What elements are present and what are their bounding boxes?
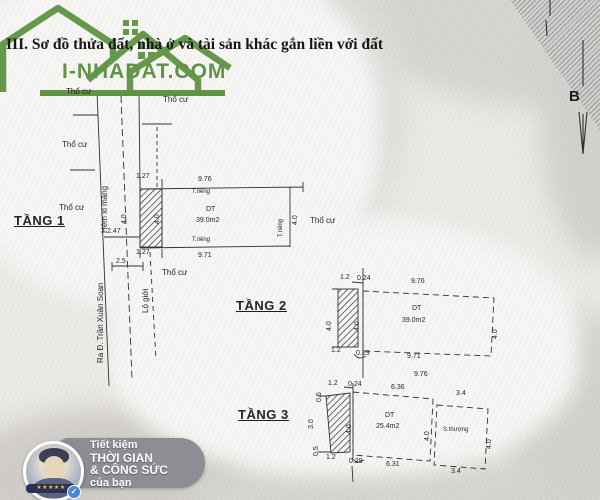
north-arrow [546,0,587,154]
watermark-text: I-NHADAT.COM [62,60,226,84]
scanned-document-page: III. Sơ đồ thửa đất, nhà ở và tài sản kh… [0,0,600,500]
dim-bottom-width: 9.71 [198,252,212,260]
dim-top-width: 9.76 [411,278,425,286]
dim-stair-bottom: 1.2 [326,454,336,462]
dim-side: 4.0 [121,214,129,224]
area-abbrev: DT [385,412,394,420]
dim-alley-width: 2.47 [107,228,121,236]
badge-line-4: của bạn [90,477,168,490]
dim-terrace-bottom: 3.4 [451,468,461,476]
dim-offset-top: 0.24 [357,275,371,283]
tho-cu-label: Thổ cư [310,216,335,225]
wall-type-label: T.riêng [278,219,285,237]
floor3-label: TẦNG 3 [238,411,289,421]
badge-line-3: & CÔNG SỨC [90,464,168,477]
promo-badge: Tiết kiệm THỜI GIAN & CÔNG SỨC của bạn ★… [20,433,200,500]
dim-stair-top: 1.27 [136,173,150,181]
dim-seg-small: 0.5 [313,446,321,456]
dim-offset-bottom: 0.29 [349,458,363,466]
floor2-area-value: 39.0m2 [402,317,425,325]
dim-stair-bottom: 1.27 [136,249,150,257]
wall-type-label: T.riêng [192,189,210,196]
dim-stair-bottom: 1.2 [331,347,341,355]
dim-side: 4.0 [292,215,300,225]
dim-main-top: 6.36 [391,384,405,392]
floor1-label: TẦNG 1 [14,217,65,227]
area-abbrev: DT [206,206,215,214]
dim-seg-mid: 3.0 [308,419,316,429]
dim-stair-top: 1.2 [328,380,338,388]
badge-text: Tiết kiệm THỜI GIAN & CÔNG SỨC của bạn [90,439,168,489]
dim-side: 4.0 [354,321,362,331]
road-boundary-label: Lộ giới [141,289,150,313]
tho-cu-label: Thổ cư [59,203,84,212]
dim-main-bottom: 6.31 [386,461,400,469]
dim-side: 4.0 [154,214,162,224]
north-marker-label: B [569,88,580,105]
badge-line-1: Tiết kiệm [90,439,168,452]
dim-side: 4.0 [486,439,494,449]
verified-check-icon: ✓ [67,485,81,499]
dim-seg-small: 0.5 [316,392,324,402]
area-abbrev: DT [412,305,421,313]
dim-side: 4.0 [326,321,334,331]
floor1-area-value: 39.0m2 [196,217,219,225]
tho-cu-label: Thổ cư [162,268,187,277]
dim-offset-bottom: 0.29 [356,350,370,358]
dim-bottom-width: 9.71 [407,353,421,361]
dim-side: 4.0 [424,431,432,441]
terrace-label: S.thượng [443,427,468,434]
dim-setback: 2.5 [116,258,126,266]
street-direction-label: Ra Đ. Trần Xuân Soạn [96,283,105,364]
dim-stair-top: 1.2 [340,274,350,282]
tho-cu-label: Thổ cư [163,95,188,104]
section-title: III. Sơ đồ thửa đất, nhà ở và tài sản kh… [6,36,446,54]
alley-name-label: Hẻm xi măng [100,186,109,233]
dim-overall-width: 9.76 [414,371,428,379]
floor2-label: TẦNG 2 [236,302,287,312]
wall-type-label: T.riêng [192,237,210,244]
dim-side: 4.0 [346,424,354,434]
tho-cu-label: Thổ cư [66,87,91,96]
dim-terrace-top: 3.4 [456,390,466,398]
tho-cu-label: Thổ cư [62,140,87,149]
dim-top-width: 9.76 [198,176,212,184]
floor3-area-value: 25.4m2 [376,423,399,431]
dim-offset-top: 0.24 [348,381,362,389]
dim-side: 4.0 [492,329,500,339]
